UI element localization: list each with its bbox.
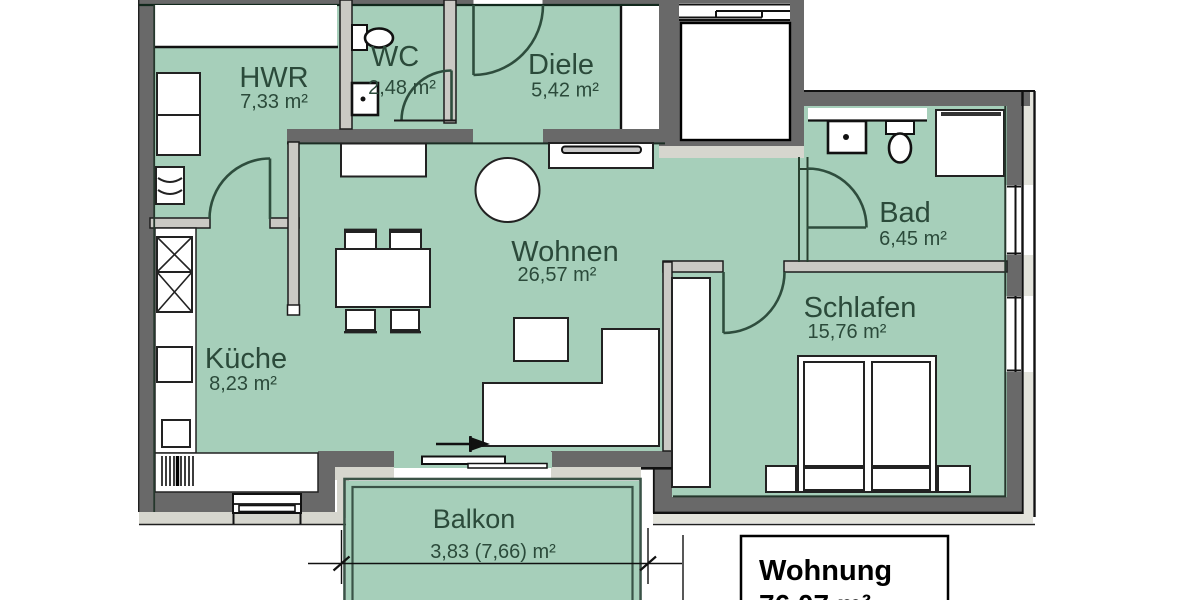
svg-text:WC: WC: [371, 41, 419, 73]
svg-text:Balkon: Balkon: [433, 504, 516, 534]
svg-text:26,57 m²: 26,57 m²: [518, 264, 597, 286]
svg-text:8,23 m²: 8,23 m²: [209, 373, 277, 395]
svg-text:15,76 m²: 15,76 m²: [808, 321, 887, 343]
svg-text:Wohnung: Wohnung: [759, 555, 892, 587]
svg-text:6,45 m²: 6,45 m²: [879, 228, 947, 250]
svg-text:5,42 m²: 5,42 m²: [531, 80, 599, 102]
svg-text:Diele: Diele: [528, 49, 594, 81]
svg-text:Schlafen: Schlafen: [804, 292, 917, 324]
svg-text:7,33 m²: 7,33 m²: [240, 91, 308, 113]
svg-text:Bad: Bad: [879, 197, 931, 229]
svg-text:3,83 (7,66) m²: 3,83 (7,66) m²: [430, 541, 556, 563]
svg-text:Küche: Küche: [205, 343, 287, 375]
svg-text:76,07 m²: 76,07 m²: [759, 589, 871, 600]
svg-text:2,48 m²: 2,48 m²: [368, 77, 436, 99]
svg-text:HWR: HWR: [239, 62, 308, 94]
